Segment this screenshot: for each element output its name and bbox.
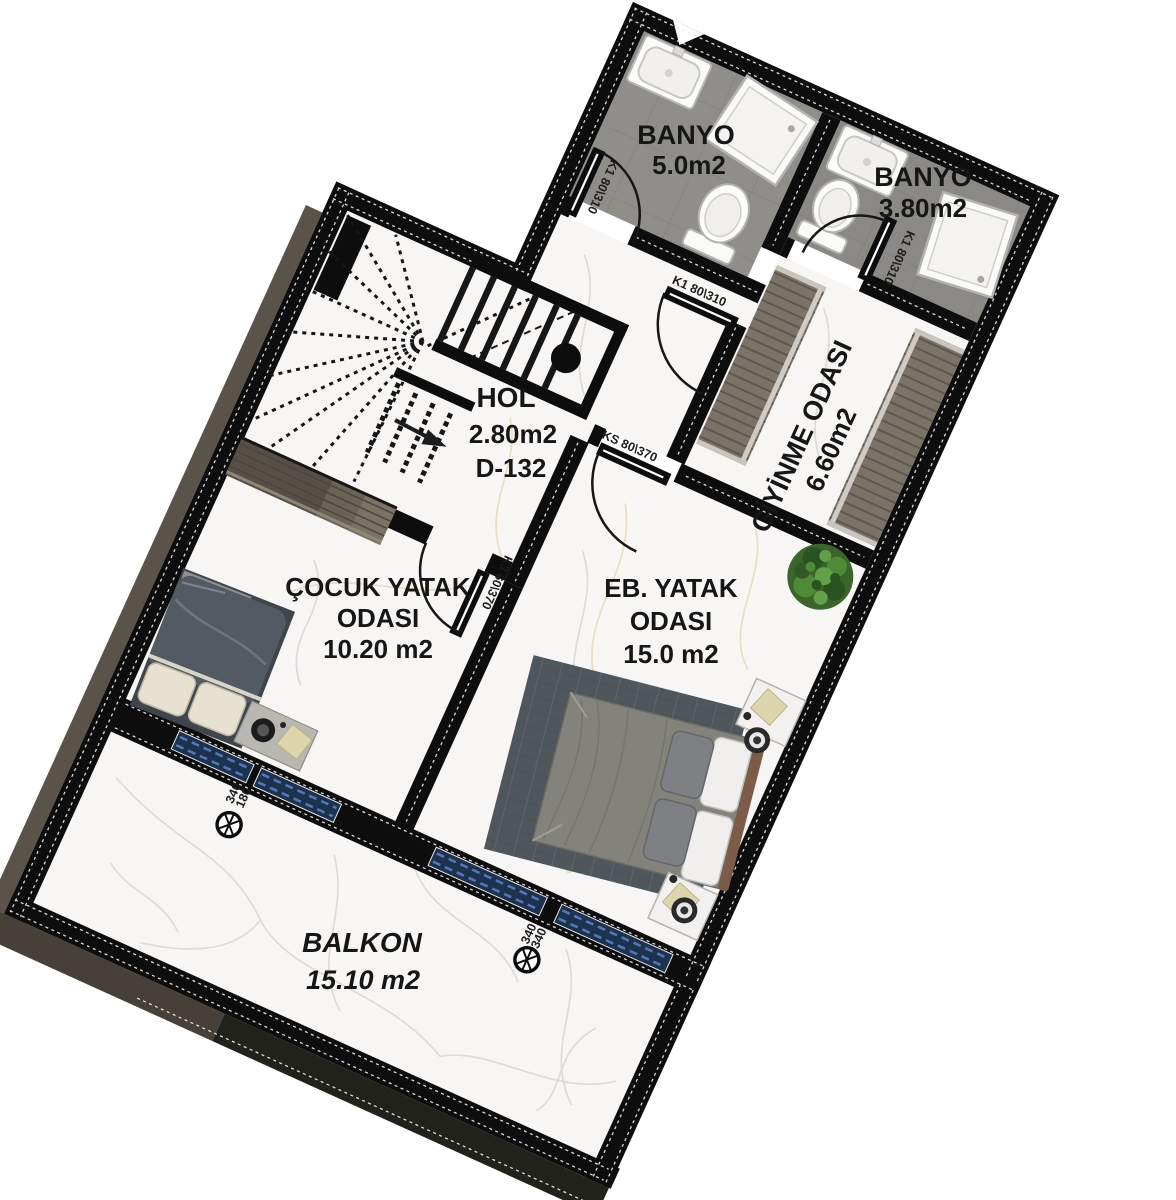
svg-text:2.80m2: 2.80m2 [469,419,557,449]
svg-text:10.20 m2: 10.20 m2 [323,634,433,664]
svg-text:15.0 m2: 15.0 m2 [623,639,718,669]
svg-text:5.0m2: 5.0m2 [652,150,726,180]
svg-text:BALKON: BALKON [302,927,423,958]
svg-text:15.10 m2: 15.10 m2 [306,965,420,995]
svg-text:BANYO: BANYO [874,162,972,192]
svg-text:HOL: HOL [476,382,535,413]
svg-text:BANYO: BANYO [637,120,735,150]
svg-text:3.80m2: 3.80m2 [879,193,967,223]
svg-text:ODASI: ODASI [337,603,419,633]
svg-text:ODASI: ODASI [630,606,712,636]
svg-text:D-132: D-132 [476,453,547,483]
svg-text:EB. YATAK: EB. YATAK [604,573,738,603]
svg-text:ÇOCUK YATAK: ÇOCUK YATAK [285,572,471,602]
